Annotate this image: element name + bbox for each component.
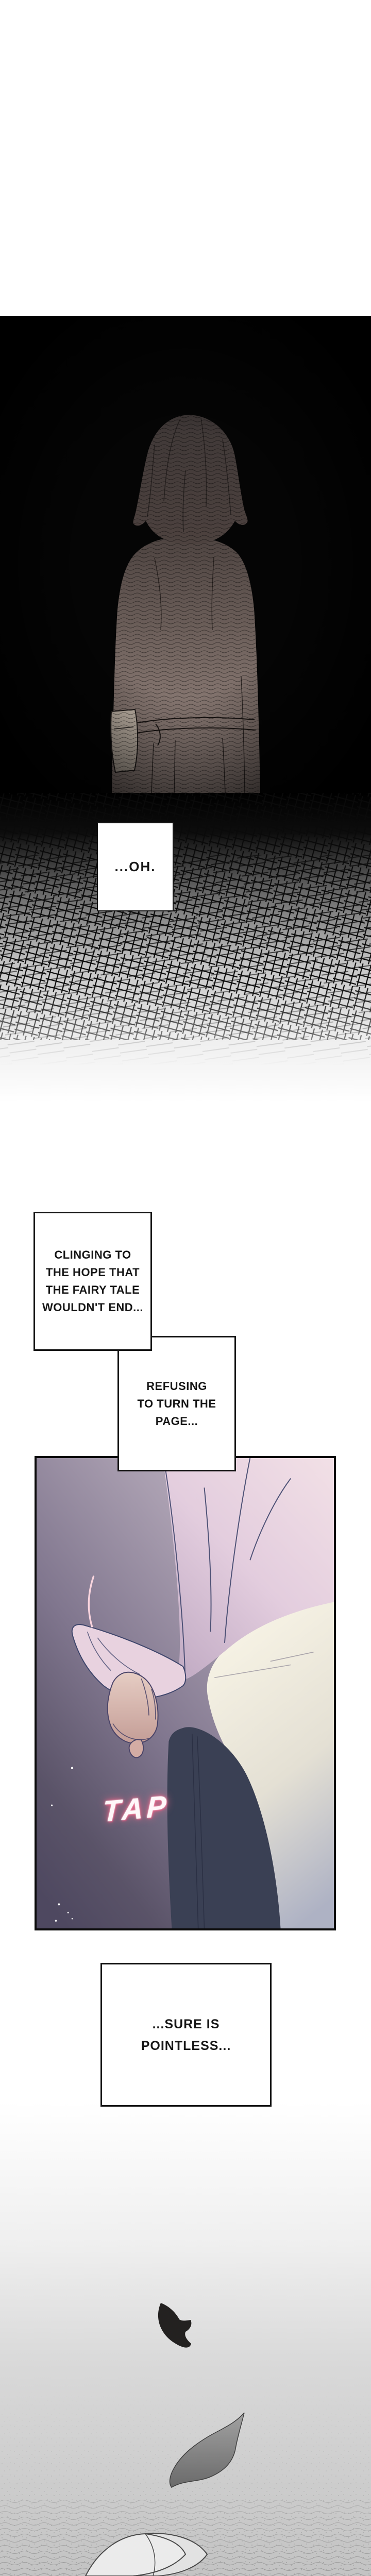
hand-panel-art (37, 1458, 334, 1928)
speech-text-oh: ...OH. (115, 859, 156, 875)
caption-text-clinging: CLINGING TO THE HOPE THAT THE FAIRY TALE… (42, 1246, 143, 1316)
caption-box-pointless: ...SURE IS POINTLESS... (100, 1963, 272, 2107)
webtoon-page: ...OH. CLINGING TO THE HOPE THAT THE FAI… (0, 0, 371, 2576)
tap-sound-effect: TAP (102, 1789, 171, 1829)
vignette-shadow (0, 316, 371, 793)
panel-dark-figure (0, 316, 371, 793)
falling-papers-scene (0, 2102, 371, 2576)
panel-hand-tap: TAP (35, 1456, 336, 1930)
panel-crosshatch (0, 793, 371, 1103)
thumb-down (129, 1739, 144, 1757)
caption-text-refusing: REFUSING TO TURN THE PAGE... (138, 1378, 216, 1430)
speech-box-oh: ...OH. (97, 822, 174, 911)
caption-box-refusing: REFUSING TO TURN THE PAGE... (117, 1336, 236, 1471)
hatch-diagonal-texture (0, 855, 371, 1103)
caption-box-clinging: CLINGING TO THE HOPE THAT THE FAIRY TALE… (33, 1212, 152, 1351)
crosshatch-art (0, 793, 371, 1103)
figure-back-view-art (0, 316, 371, 793)
caption-text-pointless: ...SURE IS POINTLESS... (141, 2013, 231, 2057)
falling-papers-art (0, 2102, 371, 2576)
